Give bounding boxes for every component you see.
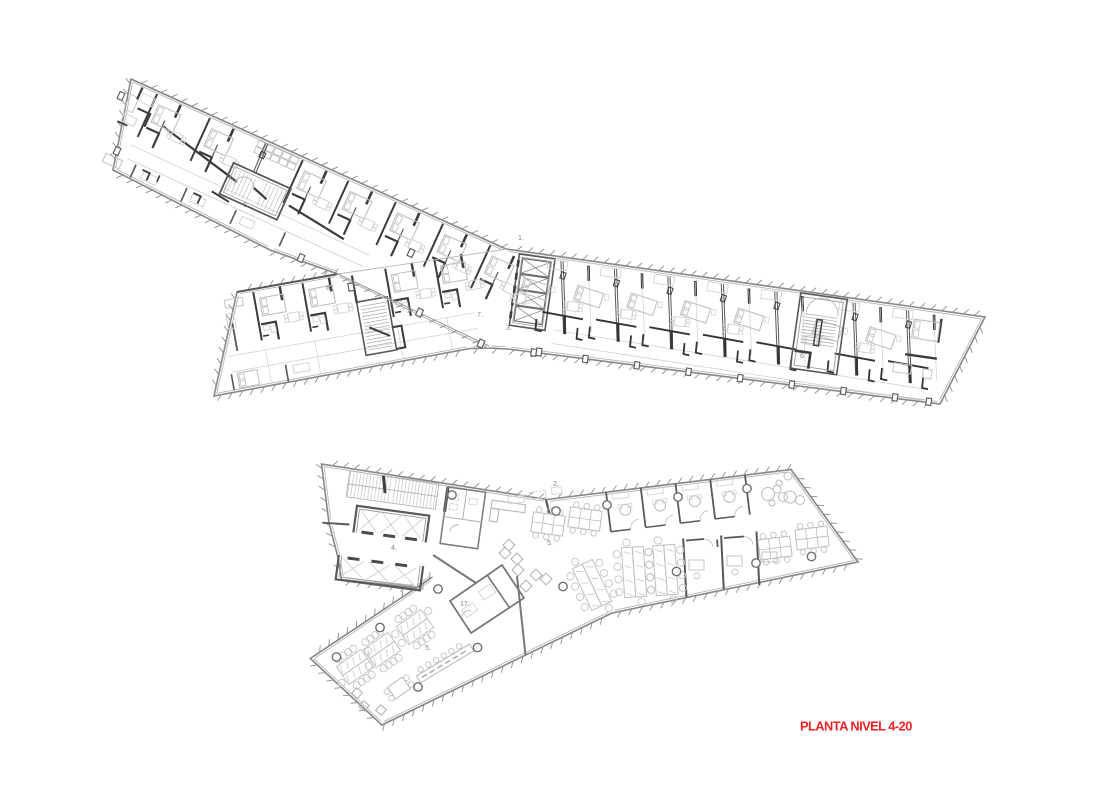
svg-text:4.: 4.: [391, 545, 397, 552]
svg-text:5.: 5.: [425, 645, 431, 652]
svg-text:6.: 6.: [800, 353, 806, 360]
svg-text:3.: 3.: [506, 325, 512, 332]
svg-text:5.: 5.: [547, 540, 553, 547]
svg-text:6.: 6.: [326, 285, 332, 292]
svg-text:2.: 2.: [553, 481, 559, 488]
svg-text:6.: 6.: [243, 202, 249, 209]
svg-text:17.: 17.: [460, 601, 470, 608]
svg-text:7.: 7.: [477, 312, 483, 319]
svg-text:PLANTA NIVEL 4-20: PLANTA NIVEL 4-20: [800, 719, 912, 734]
svg-text:1.: 1.: [518, 235, 524, 242]
